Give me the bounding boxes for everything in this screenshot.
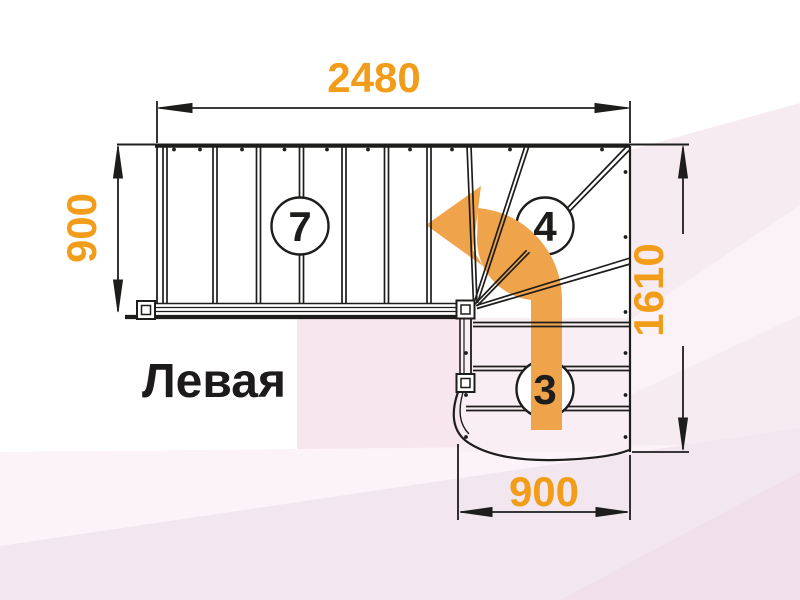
dimension-left: 900 [58, 193, 105, 263]
upper-flight-count: 7 [288, 203, 311, 250]
dimension-right: 1610 [625, 243, 672, 336]
plan-canvas: 7 4 3 2480 900 1610 900 Левая [0, 0, 800, 600]
lower-flight-count: 3 [533, 366, 556, 413]
staircase-plan-drawing: 7 4 3 2480 900 1610 900 Левая [0, 0, 800, 600]
stair-orientation-label: Левая [142, 355, 286, 408]
dimension-bottom: 900 [509, 468, 579, 515]
dimension-top: 2480 [327, 54, 420, 101]
winder-count: 4 [533, 203, 557, 250]
